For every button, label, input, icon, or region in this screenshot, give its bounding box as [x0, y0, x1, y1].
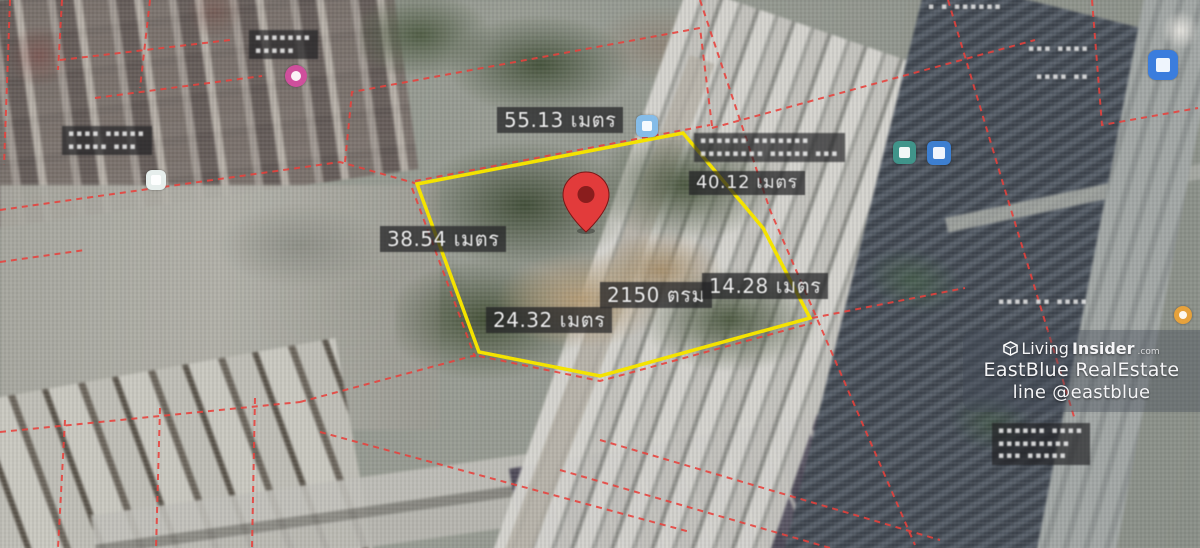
- illegible-top-label: ▪▪▪▪▪▪▪ ▪▪▪▪▪: [249, 30, 318, 59]
- illegible-br-line3: ▪▪▪ ▪▪▪▪▪: [998, 450, 1084, 463]
- illegible-bottomright-label: ▪▪▪▪▪▪ ▪▪▪▪ ▪▪▪▪▪▪▪▪▪ ▪▪▪ ▪▪▪▪▪: [992, 423, 1090, 465]
- teal-place-marker-icon: [893, 141, 916, 164]
- blue-place-marker-icon: [927, 141, 951, 165]
- measurement-bottom-right: 14.28 เมตร: [702, 273, 828, 299]
- illegible-br-line1: ▪▪▪▪▪▪ ▪▪▪▪: [998, 425, 1084, 438]
- measurement-left: 38.54 เมตร: [380, 226, 506, 252]
- brand-prefix: Living: [1021, 339, 1069, 358]
- faint-label-topright-2: ▪▪▪▪ ▪▪: [1036, 72, 1089, 82]
- illegible-left-label: ▪▪▪▪ ▪▪▪▪▪ ▪▪▪▪▪ ▪▪▪: [62, 126, 152, 155]
- measurement-area: 2150 ตรม: [600, 282, 712, 308]
- livinginsider-cube-icon: [1003, 341, 1018, 356]
- illegible-br-line2: ▪▪▪▪▪▪▪▪▪: [998, 438, 1084, 451]
- big-blue-place-marker-icon: [1148, 50, 1178, 80]
- illegible-info-line2: ▪▪▪▪▪▪▪▪ ▪▪▪▪▪ ▪▪▪: [700, 148, 839, 161]
- illegible-info-label: ▪▪▪▪▪▪ ▪▪▪▪▪▪▪ ▪▪▪▪▪▪▪▪ ▪▪▪▪▪ ▪▪▪: [694, 133, 845, 162]
- map-annotations-svg: [0, 0, 1200, 548]
- measurement-right: 40.12 เมตร: [689, 171, 805, 195]
- watermark-brand: LivingInsider.com: [1003, 339, 1159, 358]
- parcel-boundary-lines: [0, 0, 1198, 548]
- faint-label-topright-1: ▪▪▪ ▪▪▪▪: [1028, 44, 1090, 54]
- measurement-top: 55.13 เมตร: [497, 107, 623, 133]
- lightblue-place-marker-icon: [636, 115, 658, 137]
- faint-label-top: ▪ ▪ ▪▪▪▪▪▪: [928, 2, 1003, 12]
- map-pin-icon: [563, 172, 609, 234]
- white-place-marker-icon: [146, 170, 166, 190]
- illegible-info-line1: ▪▪▪▪▪▪ ▪▪▪▪▪▪▪: [700, 135, 839, 148]
- watermark-line-id: line @eastblue: [1013, 382, 1151, 403]
- illegible-left-line1: ▪▪▪▪ ▪▪▪▪▪: [68, 128, 146, 141]
- illegible-left-line2: ▪▪▪▪▪ ▪▪▪: [68, 141, 146, 154]
- brand-suffix: Insider: [1072, 339, 1135, 358]
- satellite-map-image: 55.13 เมตร 38.54 เมตร 40.12 เมตร 2150 ตร…: [0, 0, 1200, 548]
- watermark-agency: EastBlue RealEstate: [984, 359, 1180, 381]
- measurement-bottom-left: 24.32 เมตร: [486, 307, 612, 333]
- faint-label-right-mid: ▪▪▪▪ ▪▪ ▪▪▪▪: [998, 297, 1089, 307]
- illegible-top-line1: ▪▪▪▪▪▪▪: [255, 32, 312, 45]
- pink-place-marker-icon: [285, 65, 307, 87]
- watermark-panel: LivingInsider.com EastBlue RealEstate li…: [963, 330, 1200, 412]
- illegible-top-line2: ▪▪▪▪▪: [255, 45, 312, 58]
- orange-place-marker-icon: [1174, 306, 1192, 324]
- brand-tld: .com: [1138, 347, 1160, 357]
